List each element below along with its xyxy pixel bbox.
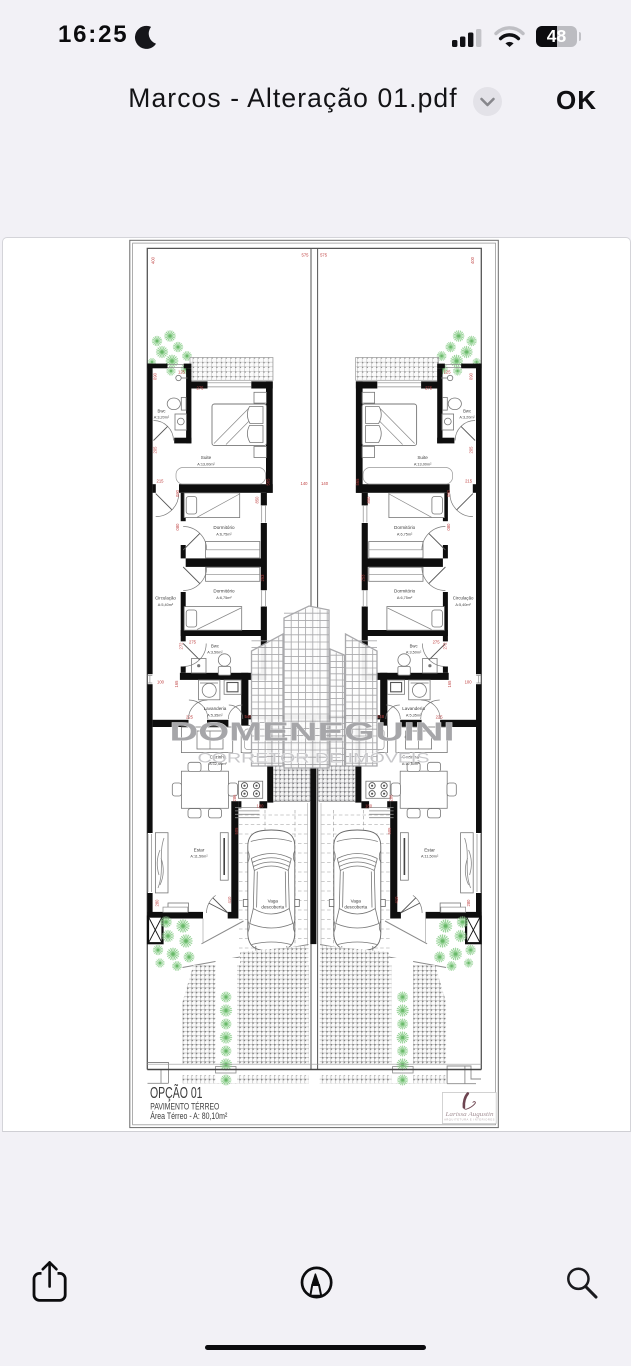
svg-text:253: 253: [260, 574, 265, 582]
svg-text:286: 286: [389, 794, 394, 802]
svg-text:Lavanderia: Lavanderia: [204, 706, 227, 711]
svg-text:Dormitório: Dormitório: [394, 589, 416, 594]
svg-text:100: 100: [157, 680, 165, 685]
svg-text:165: 165: [447, 680, 452, 688]
svg-text:205: 205: [468, 446, 473, 454]
svg-text:080: 080: [446, 523, 451, 531]
svg-text:410: 410: [394, 896, 399, 904]
svg-text:Circulação: Circulação: [453, 596, 474, 601]
svg-text:Bwc: Bwc: [158, 409, 166, 414]
svg-text:280: 280: [466, 899, 471, 907]
svg-text:A:13,00m²: A:13,00m²: [414, 463, 432, 467]
svg-text:Lavanderia: Lavanderia: [402, 706, 425, 711]
svg-text:A:5,35m²: A:5,35m²: [207, 714, 223, 718]
svg-text:descoberta: descoberta: [261, 904, 284, 909]
svg-text:272: 272: [442, 642, 447, 650]
svg-text:850: 850: [255, 496, 260, 504]
svg-text:565: 565: [266, 478, 271, 486]
svg-text:215: 215: [157, 479, 165, 484]
svg-text:Dormitório: Dormitório: [213, 589, 235, 594]
svg-text:A:6,75m²: A:6,75m²: [216, 533, 232, 537]
svg-text:140: 140: [301, 481, 309, 486]
svg-text:286: 286: [232, 794, 237, 802]
svg-text:Bwc: Bwc: [410, 644, 418, 649]
svg-text:Estar: Estar: [194, 848, 205, 853]
svg-text:Dormitório: Dormitório: [213, 525, 235, 530]
svg-text:OPÇÃO 01: OPÇÃO 01: [150, 1085, 203, 1102]
svg-text:PAVIMENTO TÉRREO: PAVIMENTO TÉRREO: [150, 1101, 219, 1111]
svg-text:575: 575: [320, 253, 328, 258]
svg-text:400: 400: [151, 256, 156, 264]
svg-text:Dormitório: Dormitório: [394, 525, 416, 530]
svg-text:410: 410: [227, 896, 232, 904]
svg-text:100: 100: [465, 680, 473, 685]
svg-text:275: 275: [197, 386, 205, 391]
svg-text:A:6,75m²: A:6,75m²: [397, 533, 413, 537]
svg-text:Bwc: Bwc: [211, 644, 219, 649]
svg-text:080: 080: [175, 523, 180, 531]
svg-text:Vaga: Vaga: [268, 898, 279, 903]
svg-text:215: 215: [465, 479, 473, 484]
svg-text:090: 090: [468, 372, 473, 380]
svg-text:Área Térreo - A: 80,10m²: Área Térreo - A: 80,10m²: [150, 1111, 227, 1121]
svg-text:275: 275: [433, 640, 441, 645]
svg-text:Circulação: Circulação: [155, 596, 176, 601]
svg-text:Bwc: Bwc: [463, 409, 471, 414]
svg-text:Suite: Suite: [417, 455, 428, 460]
svg-text:280: 280: [155, 899, 160, 907]
svg-text:Vaga: Vaga: [351, 898, 362, 903]
svg-text:205: 205: [152, 446, 157, 454]
svg-text:275: 275: [425, 386, 433, 391]
svg-text:Larissa Augustin: Larissa Augustin: [444, 1111, 493, 1118]
svg-text:DOMENEGUINI: DOMENEGUINI: [170, 719, 455, 747]
svg-text:Suite: Suite: [201, 455, 212, 460]
svg-text:140: 140: [321, 481, 329, 486]
svg-text:505: 505: [387, 827, 392, 835]
svg-text:A:5,35m²: A:5,35m²: [406, 714, 422, 718]
svg-text:A:6,75m²: A:6,75m²: [397, 596, 413, 600]
svg-text:A:6,75m²: A:6,75m²: [216, 596, 232, 600]
svg-text:A:3,50m²: A:3,50m²: [406, 651, 422, 655]
svg-text:180: 180: [257, 804, 265, 809]
svg-text:090: 090: [152, 372, 157, 380]
svg-text:A:5,40m²: A:5,40m²: [158, 603, 174, 607]
svg-text:125: 125: [444, 370, 452, 375]
svg-text:CORRETOR DE IMÓVEIS: CORRETOR DE IMÓVEIS: [198, 751, 430, 766]
svg-text:180: 180: [365, 804, 373, 809]
svg-text:275: 275: [189, 640, 197, 645]
svg-text:565: 565: [355, 478, 360, 486]
svg-text:125: 125: [178, 370, 186, 375]
svg-text:descoberta: descoberta: [344, 904, 367, 909]
svg-text:272: 272: [178, 642, 183, 650]
svg-text:575: 575: [302, 253, 310, 258]
svg-text:850: 850: [366, 496, 371, 504]
svg-text:A:11,50m²: A:11,50m²: [190, 855, 208, 859]
svg-text:A:3,20m²: A:3,20m²: [459, 416, 475, 420]
svg-text:505: 505: [234, 827, 239, 835]
svg-text:090: 090: [175, 489, 180, 497]
svg-text:A:13,00m²: A:13,00m²: [197, 463, 215, 467]
svg-text:ARQUITETURA E INTERIORES: ARQUITETURA E INTERIORES: [444, 1118, 495, 1122]
svg-text:A:5,40m²: A:5,40m²: [455, 603, 471, 607]
svg-text:A:3,50m²: A:3,50m²: [207, 651, 223, 655]
svg-text:090: 090: [446, 489, 451, 497]
svg-text:Estar: Estar: [424, 848, 435, 853]
svg-text:165: 165: [174, 680, 179, 688]
svg-text:400: 400: [470, 256, 475, 264]
svg-text:253: 253: [361, 574, 366, 582]
svg-text:A:3,20m²: A:3,20m²: [154, 416, 170, 420]
svg-text:A:11,50m²: A:11,50m²: [421, 855, 439, 859]
